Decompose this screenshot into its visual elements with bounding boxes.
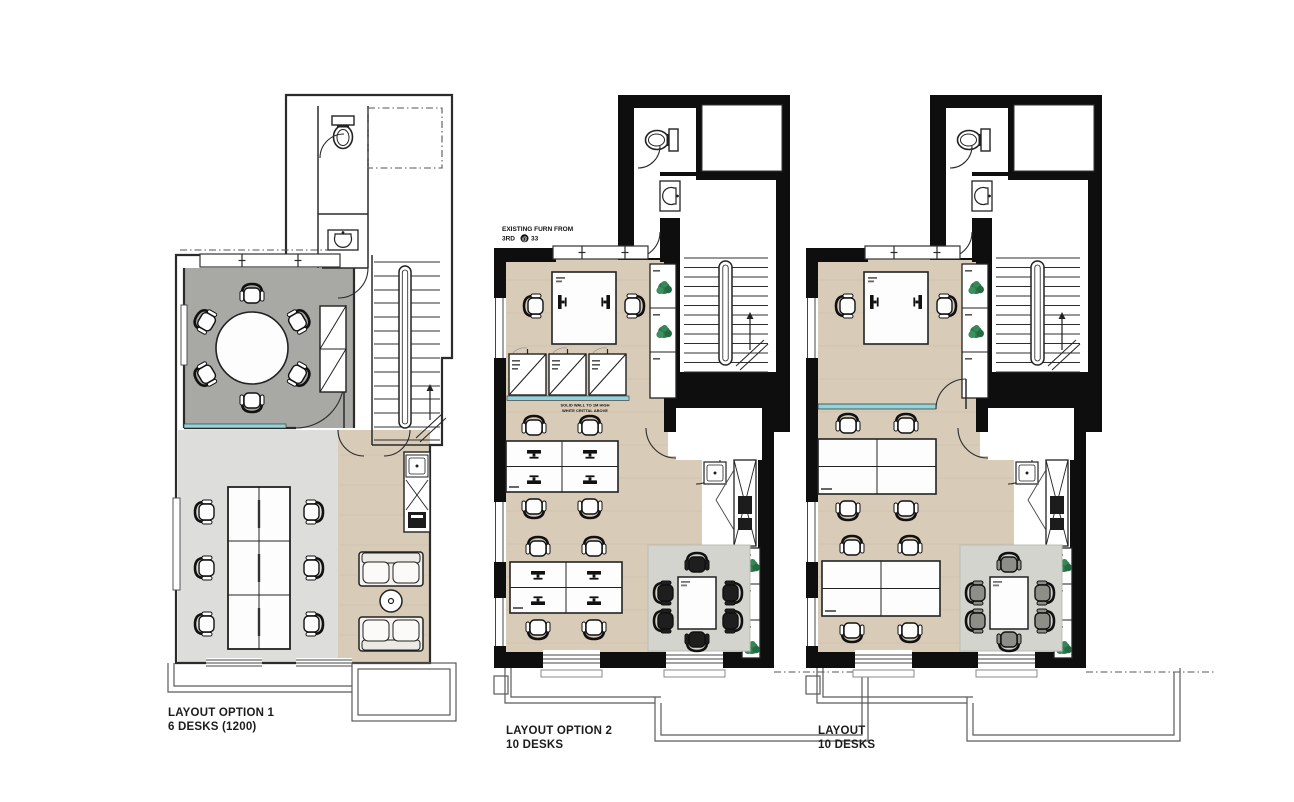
locker <box>589 348 626 395</box>
window <box>173 498 180 590</box>
glazed-sill <box>184 424 286 428</box>
existing-furniture-annotation: EXISTING FURN FROM 3RD @ 33 <box>502 226 573 243</box>
toilet <box>332 116 354 149</box>
locker <box>509 348 546 395</box>
annotation-line2-suffix: 33 <box>531 236 539 243</box>
basin <box>328 230 358 250</box>
annotation-line1: EXISTING FURN FROM <box>502 226 573 233</box>
meeting-table-set <box>648 545 750 651</box>
window-band <box>200 254 340 267</box>
kitchenette <box>404 452 430 532</box>
glazed-low-wall <box>507 396 629 401</box>
round-table <box>216 312 288 384</box>
meeting-table-set <box>960 545 1062 651</box>
sofa <box>359 617 423 651</box>
window <box>181 305 187 365</box>
plan1-label-line1: LAYOUT OPTION 1 <box>168 707 274 719</box>
annotation-line2-prefix: 3RD <box>502 236 515 243</box>
plan-option-3 <box>804 95 1214 741</box>
plan2-label-line2: 10 DESKS <box>506 739 563 751</box>
wall-note-line1: SOLID WALL TO 1M HIGH <box>561 403 610 408</box>
credenza <box>320 306 346 392</box>
plan3-label-line2: 10 DESKS <box>818 739 875 751</box>
terrace-outline <box>806 668 1214 741</box>
sofa <box>359 552 423 586</box>
locker <box>549 348 586 395</box>
wall-note-line2: WHITE CRITTAL ABOVE <box>562 408 608 413</box>
floorplan-canvas: SOLID WALL TO 1M HIGH WHITE CRITTAL ABOV… <box>0 0 1294 802</box>
plan-labels: LAYOUT OPTION 1 6 DESKS (1200) LAYOUT OP… <box>168 707 875 751</box>
plan1-label-line2: 6 DESKS (1200) <box>168 721 256 733</box>
floorplan-drawing: SOLID WALL TO 1M HIGH WHITE CRITTAL ABOV… <box>0 0 1294 802</box>
plan3-label-line1: LAYOUT <box>818 725 865 737</box>
plan2-label-line1: LAYOUT OPTION 2 <box>506 725 612 737</box>
roof-void <box>368 108 442 168</box>
stairs <box>372 255 446 445</box>
plan-option-1 <box>168 95 456 721</box>
at-symbol: @ <box>522 236 528 242</box>
